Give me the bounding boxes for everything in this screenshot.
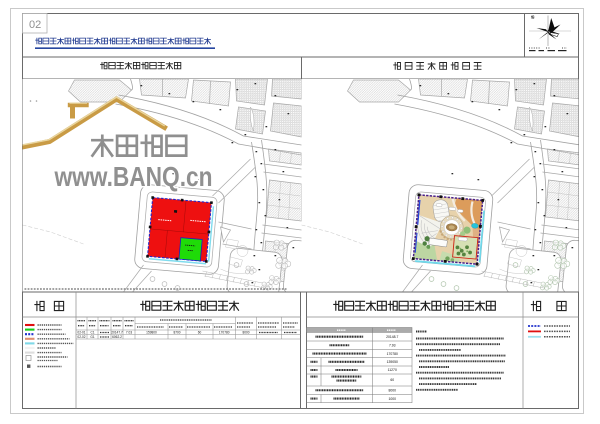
svg-text:8700: 8700 <box>173 331 180 335</box>
svg-text:C1: C1 <box>90 331 94 335</box>
svg-text:8000: 8000 <box>242 331 249 335</box>
svg-text:G1: G1 <box>90 335 94 339</box>
svg-text:60: 60 <box>390 378 394 382</box>
svg-text:139050: 139050 <box>387 360 398 364</box>
svg-text:02-02: 02-02 <box>77 335 85 339</box>
svg-text:7.93: 7.93 <box>389 343 396 347</box>
svg-text:159800: 159800 <box>146 331 157 335</box>
svg-text:02: 02 <box>29 19 41 31</box>
svg-text:8000: 8000 <box>388 388 396 392</box>
svg-text:170780: 170780 <box>219 331 230 335</box>
svg-text:7.03: 7.03 <box>126 331 132 335</box>
svg-text:20147.7: 20147.7 <box>111 331 123 335</box>
svg-text:6062.2: 6062.2 <box>112 335 122 339</box>
svg-text:60: 60 <box>198 331 202 335</box>
svg-text:20148.7: 20148.7 <box>386 335 398 339</box>
svg-text:02-01: 02-01 <box>77 331 85 335</box>
svg-text:1000: 1000 <box>388 397 396 401</box>
svg-text:www.BANQ.cn: www.BANQ.cn <box>54 161 213 192</box>
svg-text:170780: 170780 <box>387 352 398 356</box>
svg-text:11270: 11270 <box>388 368 397 372</box>
